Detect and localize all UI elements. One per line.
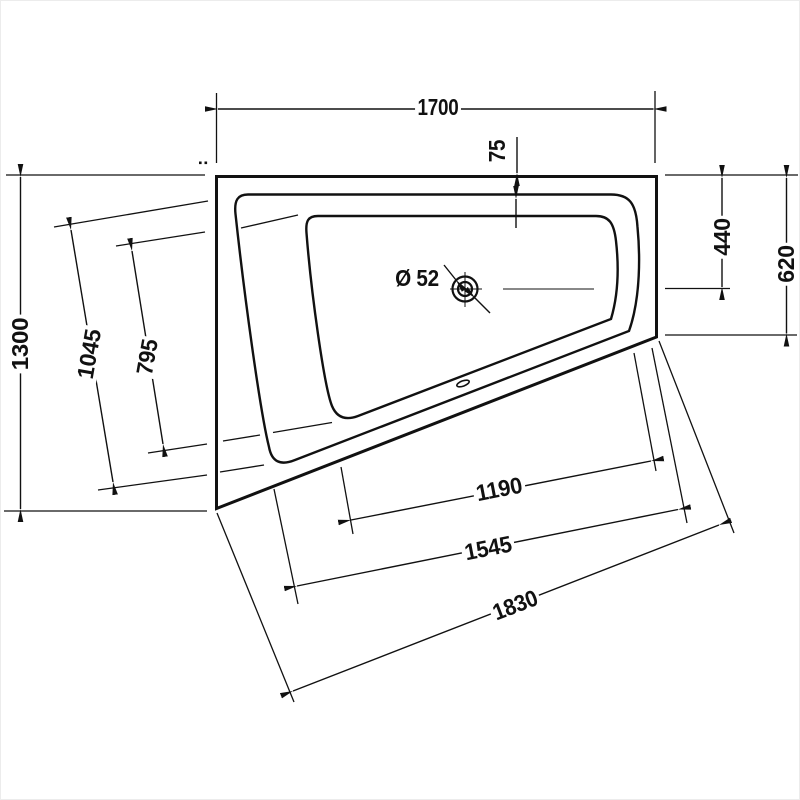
bathtub-plan-drawing — [1, 1, 800, 800]
dim-label-drain-diameter: Ø 52 — [392, 266, 441, 290]
drain-leader-arrow-se — [475, 298, 490, 313]
drain-symbol — [444, 265, 594, 313]
overflow-hole — [456, 379, 470, 388]
dim-label-75: 75 — [485, 137, 509, 165]
dim-label-440: 440 — [710, 215, 734, 258]
tub-basin-outline — [306, 216, 617, 418]
dim-label-1300: 1300 — [8, 315, 32, 374]
dim-label-620: 620 — [774, 242, 798, 285]
extension-lines — [4, 91, 798, 702]
dim-label-1700: 1700 — [415, 95, 461, 119]
technical-drawing-canvas: 1700 75 440 620 1300 1045 795 Ø 52 1190 … — [0, 0, 800, 800]
tub-outer-outline — [217, 177, 657, 509]
dimension-lines — [21, 109, 787, 691]
drain-leader-arrow-nw — [444, 265, 456, 280]
bathtub-outline-group — [217, 177, 657, 509]
